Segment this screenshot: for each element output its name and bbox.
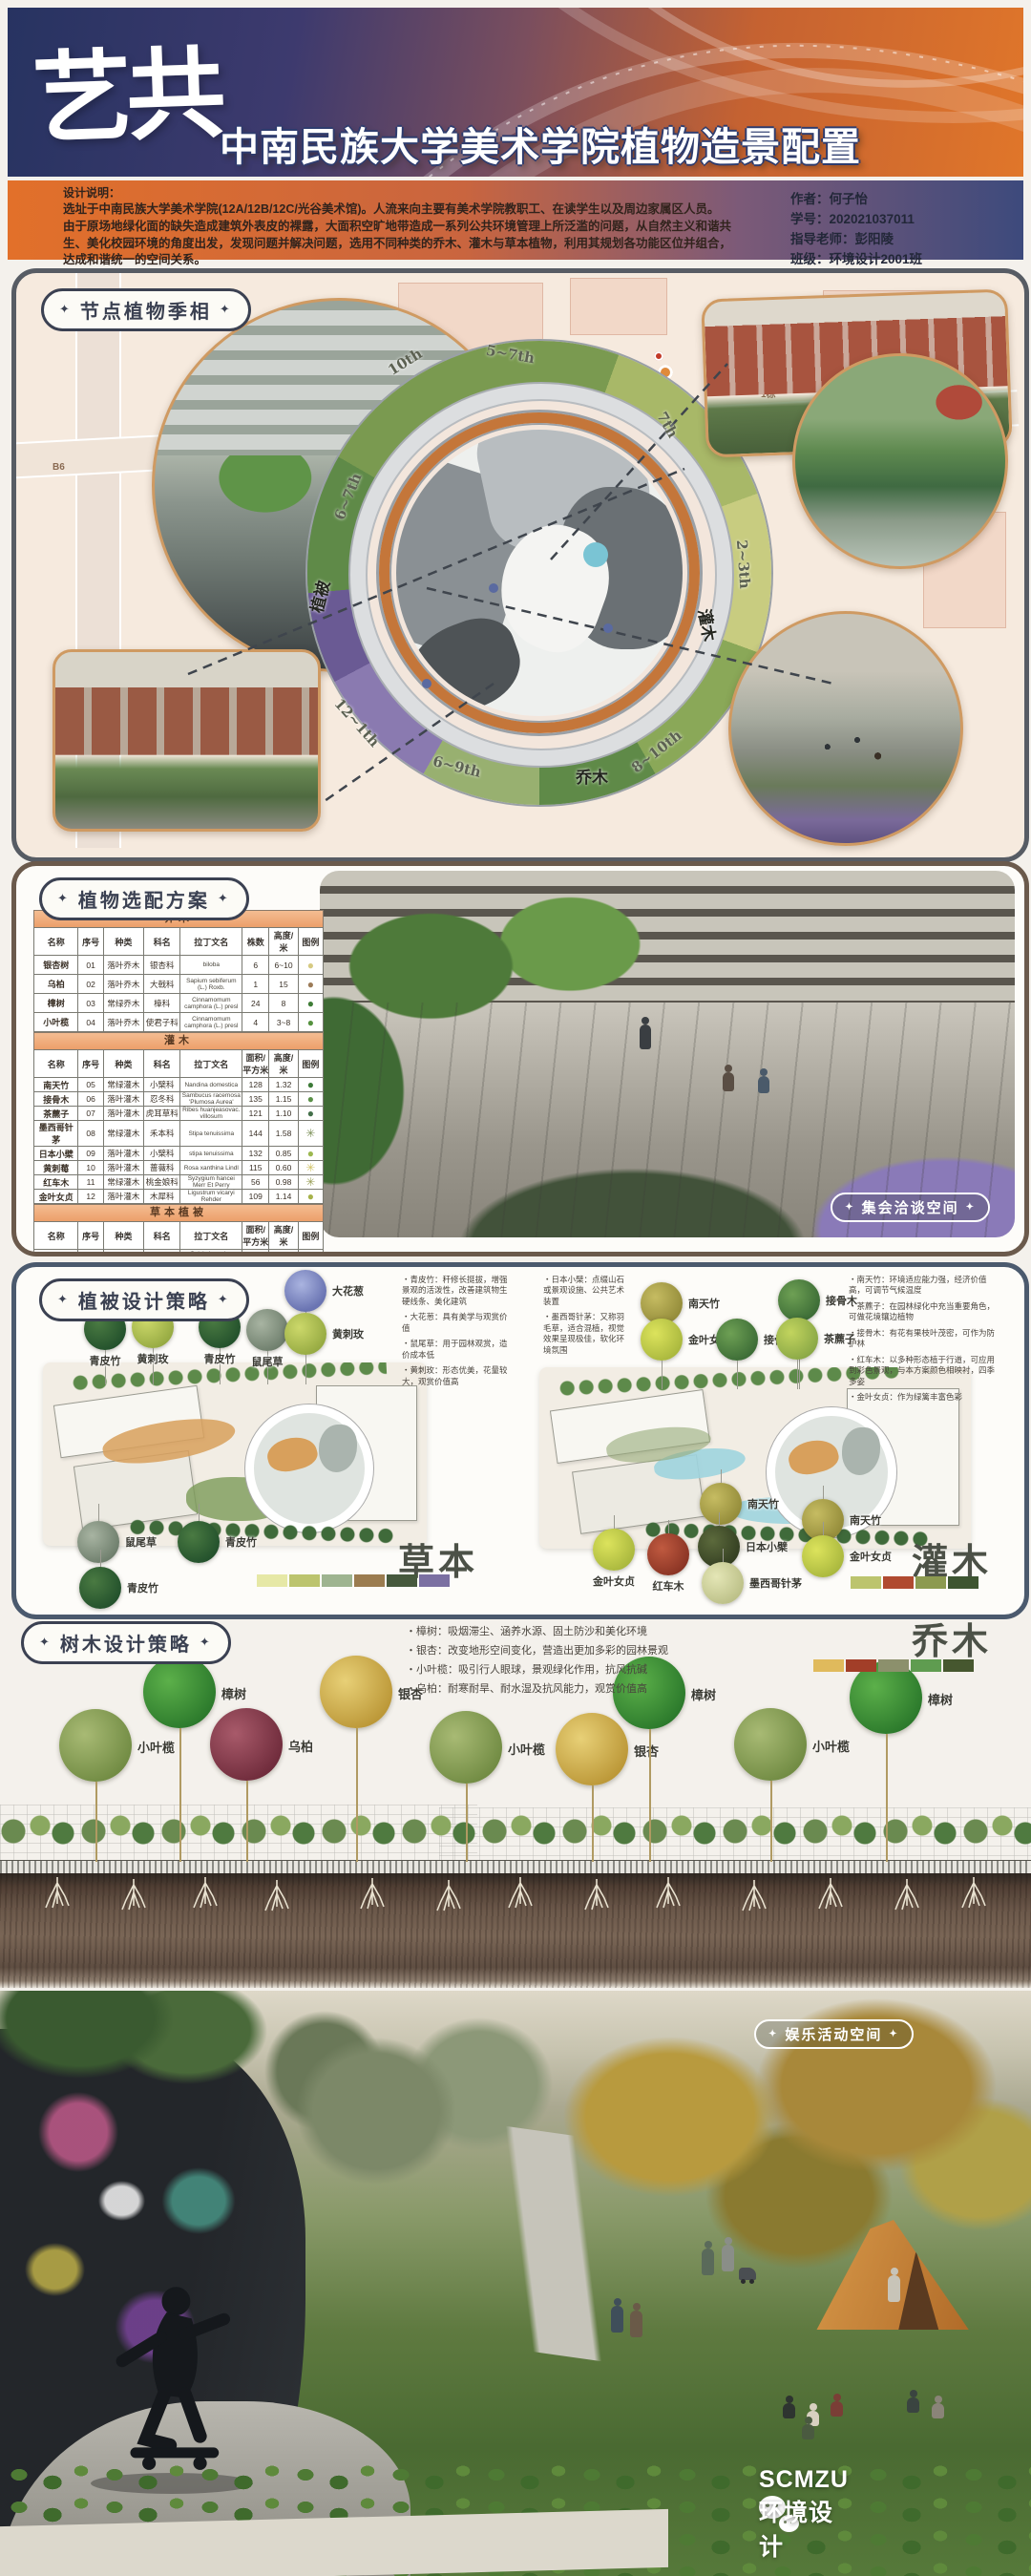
color-swatch <box>257 1574 287 1587</box>
column-header: 拉丁文名 <box>180 928 242 956</box>
table-cell: 常绿灌木 <box>103 1175 143 1190</box>
person-silhouette <box>888 2275 900 2302</box>
table-cell: 樟科 <box>144 994 180 1013</box>
table-cell: ● <box>298 1147 323 1161</box>
tree-photo-circle <box>143 1656 216 1728</box>
tree-stem <box>356 1728 358 1862</box>
table-cell: 蔷薇科 <box>144 1161 180 1175</box>
table-cell: 1.32 <box>269 1078 298 1092</box>
table-cell: 接骨木 <box>34 1092 78 1107</box>
plan-courtyard <box>245 1404 373 1532</box>
table-cell: 4 <box>242 1013 269 1032</box>
design-notes: 设计说明： 选址于中南民族大学美术学院(12A/12B/12C/光谷美术馆)。人… <box>63 185 731 269</box>
note-item: 墨西哥针茅：又称羽毛草，适合混植，视觉效果呈现极佳，软化环境氛围 <box>543 1312 631 1356</box>
plant-callout: 青皮竹 <box>79 1567 121 1609</box>
plant-callout: 墨西哥针茅 <box>702 1562 744 1604</box>
note-item: 茶藨子：在园林绿化中充当重要角色，可做花境镶边植物 <box>849 1301 1001 1323</box>
table-cell: 落叶乔木 <box>103 1013 143 1032</box>
column-header: 面积/平方米 <box>242 1222 269 1250</box>
color-swatch <box>387 1574 417 1587</box>
table-cell: ✳ <box>298 1121 323 1147</box>
person-silhouette <box>702 2249 714 2275</box>
table-cell: 桃金娘科 <box>144 1175 180 1190</box>
person-silhouette <box>640 1024 651 1049</box>
table-cell: ● <box>298 1190 323 1204</box>
column-header: 科名 <box>144 928 180 956</box>
section-title: 植物选配方案 <box>78 885 210 913</box>
table-cell: ● <box>298 1013 323 1032</box>
diamond-icon: ✦ <box>889 2029 898 2039</box>
table-cell: 07 <box>78 1107 103 1121</box>
person-silhouette <box>758 1076 769 1093</box>
table-cell: 大戟科 <box>144 975 180 994</box>
diamond-icon: ✦ <box>966 1202 976 1213</box>
column-header: 序号 <box>78 1050 103 1078</box>
table-cell: 樟树 <box>34 994 78 1013</box>
table-cell: ✳ <box>298 1175 323 1190</box>
plant-callout: 茶藨子 <box>776 1318 818 1360</box>
table-cell: 常绿灌木 <box>103 1121 143 1147</box>
tree-callout: 乌柏 <box>210 1708 283 1781</box>
person-silhouette <box>907 2397 919 2413</box>
section-title: 树木设计策略 <box>60 1629 192 1657</box>
table-band-herbs: 草本植被 <box>33 1204 324 1221</box>
plant-callout: 红车木 <box>647 1533 689 1575</box>
diamond-icon: ✦ <box>57 1293 71 1307</box>
plant-callout: 金叶女贞 <box>802 1535 844 1577</box>
table-row: 南天竹05常绿灌木小檗科Nandina domestica1281.32● <box>34 1078 324 1092</box>
table-cell: 0.85 <box>269 1147 298 1161</box>
column-header: 名称 <box>34 1050 78 1078</box>
table-band-shrubs: 灌木 <box>33 1032 324 1049</box>
table-cell: 红车木 <box>34 1175 78 1190</box>
table-cell: Sapium sebiferum (L.) Roxb. <box>180 975 242 994</box>
tree-canopy <box>0 1991 267 2105</box>
color-swatch <box>948 1576 978 1589</box>
section-plant-table: ✦ 集会洽谈空间 ✦ 乔木 名称序号种类科名拉丁文名株数高度/米图例 银杏树01… <box>11 861 1029 1256</box>
color-swatch <box>915 1576 946 1589</box>
table-cell: 09 <box>78 1147 103 1161</box>
tree-stem <box>179 1728 181 1862</box>
diamond-icon: ✦ <box>218 892 231 906</box>
tree-callout: 小叶榄 <box>734 1708 807 1781</box>
shrub-notes-right: 南天竹：环境适应能力强，经济价值高，可调节气候温度茶藨子：在园林绿化中充当重要角… <box>849 1275 1001 1408</box>
column-header: 拉丁文名 <box>180 1050 242 1078</box>
class: 班级：环境设计2001班 <box>790 250 1010 270</box>
table-cell: Salvia japonica Thunb. <box>180 1250 242 1257</box>
note-item: 大花葱：具有美学与观赏价值 <box>402 1312 509 1334</box>
table-cell: 银杏科 <box>144 956 180 975</box>
node-photo-plaza-people <box>728 611 963 846</box>
table-cell: Syzygium hancei Merr Et Perry <box>180 1175 242 1190</box>
person-silhouette <box>630 2311 642 2337</box>
tree-photo-circle <box>430 1711 502 1784</box>
tree-swatches <box>813 1659 974 1672</box>
table-cell: 常绿草本 <box>103 1250 143 1257</box>
legend-icon: ✳ <box>305 1127 315 1140</box>
design-notes-text: 选址于中南民族大学美术学院(12A/12B/12C/光谷美术馆)。人流来向主要有… <box>63 202 731 266</box>
table-cell: 落叶灌木 <box>103 1147 143 1161</box>
author: 作者：何子怡 <box>790 190 1010 210</box>
table-cell: 1.15 <box>269 1092 298 1107</box>
section-seasonal: 德邦快递 1栋 B6 10th 5~7th 7th 2~3th 6~7th 8~… <box>11 268 1029 862</box>
tree-stem <box>246 1781 248 1862</box>
note-item: 鼠尾草：用于园林观赏，造价成本低 <box>402 1339 509 1361</box>
table-cell: 0.60 <box>269 1161 298 1175</box>
column-header: 名称 <box>34 1222 78 1250</box>
table-cell: ● <box>298 1092 323 1107</box>
table-cell: 6~10 <box>269 956 298 975</box>
legend-icon: ● <box>307 959 314 972</box>
table-cell: 小檗科 <box>144 1078 180 1092</box>
tree-stem <box>770 1781 772 1862</box>
column-header: 种类 <box>103 1222 143 1250</box>
stroller <box>739 2268 756 2280</box>
table-cell: 黄刺莓 <box>34 1161 78 1175</box>
table-cell: 落叶灌木 <box>103 1092 143 1107</box>
table-cell: 银杏树 <box>34 956 78 975</box>
section-title: 植被设计策略 <box>78 1286 210 1314</box>
section-title-pill: ✦ 节点植物季相 ✦ <box>41 288 251 331</box>
zone-label-trees: 乔木 <box>576 764 608 788</box>
legend-icon: ● <box>307 997 314 1010</box>
diamond-icon: ✦ <box>57 892 71 906</box>
render-badge-label: 集会洽谈空间 <box>862 1197 959 1217</box>
person-silhouette <box>932 2403 944 2418</box>
plant-callout: 金叶女贞 <box>593 1529 635 1571</box>
plant-callout: 接骨木 <box>716 1319 758 1361</box>
color-swatch <box>883 1576 914 1589</box>
note-item: 青皮竹：秆修长挺拔，增强景观的活泼性，改善建筑物生硬线条、美化建筑 <box>402 1275 509 1307</box>
tree-stem <box>649 1729 651 1862</box>
note-item: 红车木：以多种形态植于行道，可应用到彩色景观，与本方案颜色相映衬，四季多姿 <box>849 1355 1001 1387</box>
table-cell: 0.98 <box>269 1175 298 1190</box>
table-cell: 乌柏 <box>34 975 78 994</box>
tree-photo-circle <box>210 1708 283 1781</box>
ring-label: 2~3th <box>733 539 754 589</box>
legend-icon: ✳ <box>305 1161 315 1174</box>
table-cell: 落叶乔木 <box>103 956 143 975</box>
table-cell: 常绿乔木 <box>103 994 143 1013</box>
table-cell: 132 <box>242 1147 269 1161</box>
table-cell: ● <box>298 1107 323 1121</box>
tree-big-label: 乔木 <box>912 1612 992 1664</box>
site-plan-circle <box>396 430 683 716</box>
table-cell: 落叶灌木 <box>103 1107 143 1121</box>
tree-callout: 小叶榄 <box>430 1711 502 1784</box>
table-cell: 01 <box>78 956 103 975</box>
plant-callout: 大花葱 <box>284 1270 326 1312</box>
diamond-icon: ✦ <box>768 2029 778 2039</box>
plant-callout: 金叶女贞 <box>641 1319 683 1361</box>
note-item: 银杏：改变地形空间变化，营造出更加多彩的园林景观 <box>406 1644 940 1658</box>
table-cell: Sambucus racemosa 'Plumosa Aurea' <box>180 1092 242 1107</box>
planting-strip <box>0 1810 1031 1862</box>
table-cell: 05 <box>78 1078 103 1092</box>
color-swatch <box>813 1659 844 1672</box>
legend-icon: ● <box>307 1107 314 1120</box>
table-cell: 56 <box>242 1175 269 1190</box>
diamond-icon: ✦ <box>220 303 233 317</box>
note-item: 乌柏：耐寒耐旱、耐水湿及抗风能力，观赏价值高 <box>406 1682 940 1697</box>
plant-callout: 鼠尾草 <box>77 1521 119 1563</box>
table-cell: 24 <box>242 994 269 1013</box>
note-item: 黄刺玫：形态优美，花量较大，观赏价值高 <box>402 1365 509 1387</box>
table-cell: 109 <box>242 1190 269 1204</box>
diamond-icon: ✦ <box>218 1293 231 1307</box>
table-row: 鼠尾草13常绿草本唇形科Salvia japonica Thunb.500.43… <box>34 1250 324 1257</box>
color-swatch <box>943 1659 974 1672</box>
table-cell: 茶藨子 <box>34 1107 78 1121</box>
shrub-swatches <box>851 1576 978 1589</box>
table-row: 银杏树01落叶乔木银杏科biloba66~10● <box>34 956 324 975</box>
table-cell: biloba <box>180 956 242 975</box>
table-row: 红车木11常绿灌木桃金娘科Syzygium hancei Merr Et Per… <box>34 1175 324 1190</box>
advisor: 指导老师：彭阳陵 <box>790 230 1010 250</box>
color-swatch <box>419 1574 450 1587</box>
column-header: 拉丁文名 <box>180 1222 242 1250</box>
table-row: 乌柏02落叶乔木大戟科Sapium sebiferum (L.) Roxb.11… <box>34 975 324 994</box>
column-header: 序号 <box>78 1222 103 1250</box>
herbs-table: 名称序号种类科名拉丁文名面积/平方米高度/米图例 鼠尾草13常绿草本唇形科Sal… <box>33 1221 324 1256</box>
table-cell: 115 <box>242 1161 269 1175</box>
diamond-icon: ✦ <box>845 1202 854 1213</box>
table-cell: 落叶乔木 <box>103 975 143 994</box>
tree-stem <box>95 1782 97 1862</box>
color-swatch <box>289 1574 320 1587</box>
table-cell: 13 <box>78 1250 103 1257</box>
legend-icon: ✳ <box>305 1251 315 1257</box>
table-cell: ● <box>298 994 323 1013</box>
table-cell: 128 <box>242 1078 269 1092</box>
final-scene-photo: ✦ 娱乐活动空间 ✦ SCMZU环境设计 <box>0 1991 1031 2576</box>
legend-icon: ● <box>307 978 314 991</box>
plant-callout: 接骨木 <box>778 1279 820 1321</box>
table-cell: 1.14 <box>269 1190 298 1204</box>
node-photo-grove <box>792 353 1008 569</box>
note-item: 南天竹：环境适应能力强，经济价值高，可调节气候温度 <box>849 1275 1001 1297</box>
roots-drawing <box>0 1873 1031 1940</box>
table-cell: 落叶灌木 <box>103 1190 143 1204</box>
column-header: 株数 <box>242 928 269 956</box>
table-cell: 50 <box>242 1250 269 1257</box>
table-cell: 06 <box>78 1092 103 1107</box>
column-header: 图例 <box>298 1050 323 1078</box>
student-id: 学号：202021037011 <box>790 210 1010 230</box>
column-header: 高度/米 <box>269 1222 298 1250</box>
skateboarder-silhouette <box>91 2277 243 2487</box>
table-cell: Rosa xanthina Lindl <box>180 1161 242 1175</box>
diamond-icon: ✦ <box>59 303 73 317</box>
table-cell: ✳ <box>298 1250 323 1257</box>
table-cell: stipa tenuissima <box>180 1147 242 1161</box>
legend-icon: ● <box>307 1078 314 1091</box>
table-cell: 6 <box>242 956 269 975</box>
note-item: 接骨木：有花有果枝叶茂密，可作为防护林 <box>849 1328 1001 1350</box>
node-photo-campus-building <box>53 649 321 832</box>
column-header: 名称 <box>34 928 78 956</box>
table-row: 黄刺莓10落叶灌木蔷薇科Rosa xanthina Lindl1150.60✳ <box>34 1161 324 1175</box>
table-row: 樟树03常绿乔木樟科Cinnamomum camphora (L.) presl… <box>34 994 324 1013</box>
legend-icon: ● <box>307 1092 314 1106</box>
plant-callout: 鼠尾草 <box>246 1309 288 1351</box>
color-swatch <box>851 1576 881 1589</box>
design-notes-label: 设计说明： <box>63 185 731 201</box>
color-swatch <box>878 1659 909 1672</box>
table-cell: 禾本科 <box>144 1121 180 1147</box>
column-header: 面积/平方米 <box>242 1050 269 1078</box>
table-cell: 04 <box>78 1013 103 1032</box>
table-cell: 1.58 <box>269 1121 298 1147</box>
table-row: 日本小檗09落叶灌木小檗科stipa tenuissima1320.85● <box>34 1147 324 1161</box>
table-cell: 金叶女贞 <box>34 1190 78 1204</box>
column-header: 序号 <box>78 928 103 956</box>
herb-swatches <box>257 1574 450 1587</box>
table-cell: 1.10 <box>269 1107 298 1121</box>
note-item: 樟树：吸烟滞尘、涵养水源、固土防沙和美化环境 <box>406 1625 940 1639</box>
table-row: 小叶榄04落叶乔木使君子科Cinnamomum camphora (L.) pr… <box>34 1013 324 1032</box>
herb-plan <box>43 1362 427 1546</box>
plant-callout: 南天竹 <box>700 1483 742 1525</box>
table-cell: Stipa tenuissima <box>180 1121 242 1147</box>
poster-header: 艺共 中南民族大学美术学院植物造景配置 <box>8 8 1023 177</box>
column-header: 种类 <box>103 928 143 956</box>
table-cell: 121 <box>242 1107 269 1121</box>
person-silhouette <box>802 2424 814 2439</box>
table-row: 接骨木06落叶灌木忍冬科Sambucus racemosa 'Plumosa A… <box>34 1092 324 1107</box>
column-header: 图例 <box>298 1222 323 1250</box>
table-cell: 02 <box>78 975 103 994</box>
tree-photo-circle <box>59 1709 132 1782</box>
person-silhouette <box>831 2401 843 2417</box>
legend-icon: ● <box>307 1016 314 1029</box>
scene-badge: ✦ 娱乐活动空间 ✦ <box>754 2019 914 2049</box>
section-vegetation-strategy: ✦ 植被设计策略 ✦ 青皮竹 黄刺玫 青皮竹 鼠尾草 大花葱 黄刺玫 鼠尾草 青… <box>11 1262 1029 1619</box>
plan-pool <box>583 542 608 567</box>
table-cell: 使君子科 <box>144 1013 180 1032</box>
table-cell: 常绿灌木 <box>103 1078 143 1092</box>
table-cell: 0.43 <box>269 1250 298 1257</box>
table-row: 墨西哥针茅08常绿灌木禾本科Stipa tenuissima1441.58✳ <box>34 1121 324 1147</box>
section-title: 节点植物季相 <box>80 296 212 324</box>
logo-yigong: 艺共 <box>30 12 221 163</box>
column-header: 高度/米 <box>269 1050 298 1078</box>
table-cell: Cinnamomum camphora (L.) presl <box>180 994 242 1013</box>
column-header: 图例 <box>298 928 323 956</box>
tree-photo-circle <box>320 1656 392 1728</box>
table-cell: ✳ <box>298 1161 323 1175</box>
table-cell: 虎耳草科 <box>144 1107 180 1121</box>
legend-icon: ● <box>307 1147 314 1160</box>
map-building-block <box>570 278 667 335</box>
column-header: 种类 <box>103 1050 143 1078</box>
table-row: 金叶女贞12落叶灌木木犀科Ligustrum vicaryi Rehder109… <box>34 1190 324 1204</box>
scene-badge-label: 娱乐活动空间 <box>785 2024 882 2044</box>
color-swatch <box>354 1574 385 1587</box>
plant-callout: 青皮竹 <box>178 1521 220 1563</box>
table-cell: 3~8 <box>269 1013 298 1032</box>
table-row: 茶藨子07落叶灌木虎耳草科Ribes huanjeasovac. villosu… <box>34 1107 324 1121</box>
table-cell: Ligustrum vicaryi Rehder <box>180 1190 242 1204</box>
tree-photo-circle <box>734 1708 807 1781</box>
plant-table: 乔木 名称序号种类科名拉丁文名株数高度/米图例 银杏树01落叶乔木银杏科bilo… <box>33 910 324 1256</box>
diamond-icon: ✦ <box>39 1636 53 1650</box>
person-silhouette <box>722 2245 734 2271</box>
person-silhouette <box>611 2306 623 2333</box>
shrub-notes-left: 日本小檗：点缀山石或景观设施、公共艺术装置墨西哥针茅：又称羽毛草，适合混植，视觉… <box>543 1275 631 1361</box>
table-cell: 15 <box>269 975 298 994</box>
plant-callout: 黄刺玫 <box>284 1313 326 1355</box>
info-bar: 设计说明： 选址于中南民族大学美术学院(12A/12B/12C/光谷美术馆)。人… <box>8 180 1023 260</box>
tree-callout: 樟树 <box>143 1656 216 1728</box>
legend-icon: ● <box>307 1190 314 1203</box>
plan-tree-row <box>129 1518 396 1545</box>
legend-icon: ✳ <box>305 1175 315 1189</box>
column-header: 高度/米 <box>269 928 298 956</box>
tree-stem <box>592 1785 594 1862</box>
table-cell: 144 <box>242 1121 269 1147</box>
color-swatch <box>322 1574 352 1587</box>
note-item: 日本小檗：点缀山石或景观设施、公共艺术装置 <box>543 1275 631 1307</box>
table-cell: 落叶灌木 <box>103 1161 143 1175</box>
map-pin-icon <box>654 351 663 361</box>
table-cell: Cinnamomum camphora (L.) presl <box>180 1013 242 1032</box>
table-cell: 鼠尾草 <box>34 1250 78 1257</box>
table-cell: 墨西哥针茅 <box>34 1121 78 1147</box>
poster-board: 艺共 中南民族大学美术学院植物造景配置 设计说明： 选址于中南民族大学美术学院(… <box>0 0 1031 2576</box>
color-swatch <box>911 1659 941 1672</box>
render-badge: ✦ 集会洽谈空间 ✦ <box>831 1193 990 1222</box>
table-cell: ● <box>298 956 323 975</box>
tree-callout: 银杏 <box>320 1656 392 1728</box>
column-header: 科名 <box>144 1050 180 1078</box>
author-block: 作者：何子怡 学号：202021037011 指导老师：彭阳陵 班级：环境设计2… <box>790 190 1010 270</box>
diamond-icon: ✦ <box>200 1636 213 1650</box>
table-cell: 12 <box>78 1190 103 1204</box>
section-title-pill: ✦ 树木设计策略 ✦ <box>21 1621 231 1664</box>
table-cell: 10 <box>78 1161 103 1175</box>
courtyard-rendering: ✦ 集会洽谈空间 ✦ <box>320 871 1015 1237</box>
map-label-b6: B6 <box>53 462 65 473</box>
table-cell: 11 <box>78 1175 103 1190</box>
table-cell: 08 <box>78 1121 103 1147</box>
tree-callout: 小叶榄 <box>59 1709 132 1782</box>
section-title-pill: ✦ 植物选配方案 ✦ <box>39 877 249 920</box>
table-cell: 忍冬科 <box>144 1092 180 1107</box>
table-cell: 南天竹 <box>34 1078 78 1092</box>
table-cell: 小叶榄 <box>34 1013 78 1032</box>
table-cell: ● <box>298 975 323 994</box>
poster-title: 中南民族大学美术学院植物造景配置 <box>220 115 861 172</box>
table-cell: 日本小檗 <box>34 1147 78 1161</box>
color-swatch <box>846 1659 876 1672</box>
table-cell: 03 <box>78 994 103 1013</box>
park-path <box>396 2115 710 2373</box>
tree-stem <box>466 1784 468 1862</box>
column-header: 科名 <box>144 1222 180 1250</box>
table-cell: 小檗科 <box>144 1147 180 1161</box>
watermark-text: SCMZU环境设计 <box>759 2466 849 2563</box>
section-title-pill: ✦ 植被设计策略 ✦ <box>39 1278 249 1321</box>
table-cell: 木犀科 <box>144 1190 180 1204</box>
trees-table: 名称序号种类科名拉丁文名株数高度/米图例 银杏树01落叶乔木银杏科biloba6… <box>33 927 324 1032</box>
shrubs-table: 名称序号种类科名拉丁文名面积/平方米高度/米图例 南天竹05常绿灌木小檗科Nan… <box>33 1049 324 1204</box>
person-silhouette <box>783 2403 795 2418</box>
table-cell: ● <box>298 1078 323 1092</box>
table-cell: Nandina domestica <box>180 1078 242 1092</box>
herb-notes: 青皮竹：秆修长挺拔，增强景观的活泼性，改善建筑物生硬线条、美化建筑大花葱：具有美… <box>402 1275 509 1392</box>
person-silhouette <box>723 1072 734 1091</box>
